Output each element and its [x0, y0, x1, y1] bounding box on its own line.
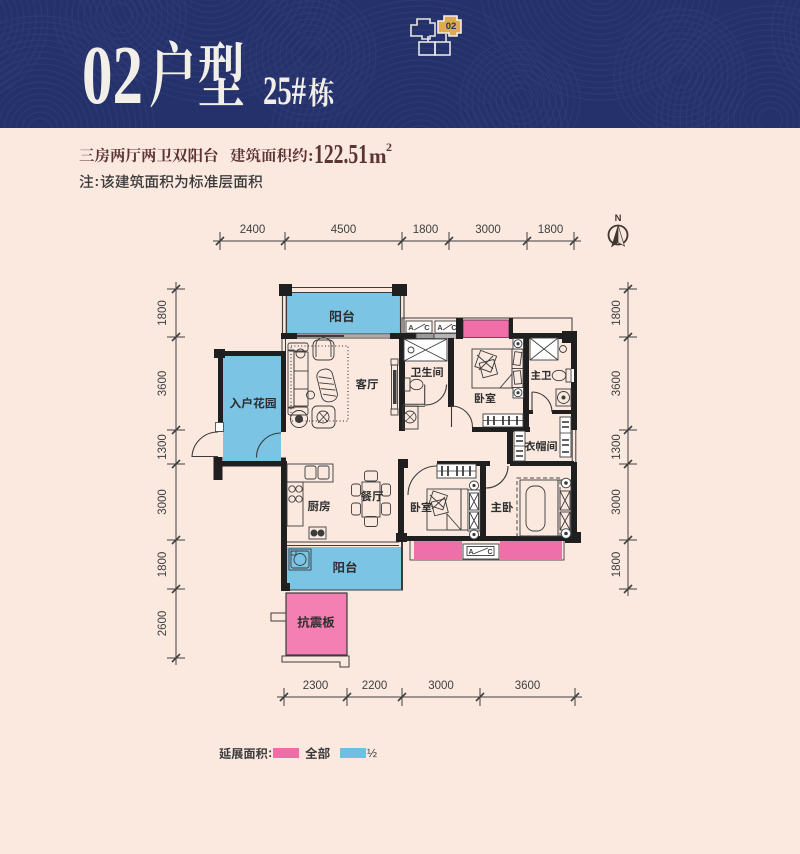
svg-text:C: C: [424, 323, 430, 332]
svg-text:1800: 1800: [413, 224, 439, 236]
svg-text:3000: 3000: [611, 489, 623, 515]
svg-text:2200: 2200: [362, 680, 388, 692]
svg-text:25#: 25#: [263, 68, 306, 113]
svg-text:02: 02: [446, 21, 457, 32]
svg-text:2300: 2300: [303, 680, 329, 692]
svg-text:1800: 1800: [611, 300, 623, 326]
svg-text:02: 02: [82, 29, 143, 122]
svg-text:2600: 2600: [157, 611, 169, 637]
svg-text::: :: [308, 146, 314, 165]
svg-text:3600: 3600: [515, 680, 541, 692]
svg-text:N: N: [615, 213, 622, 224]
svg-text:½: ½: [367, 746, 377, 760]
svg-text:2400: 2400: [240, 224, 266, 236]
svg-text::: :: [268, 745, 272, 760]
svg-text:122.51: 122.51: [314, 139, 368, 169]
svg-text:4500: 4500: [331, 224, 357, 236]
svg-text::: :: [95, 173, 100, 189]
svg-text:1800: 1800: [538, 224, 564, 236]
svg-text:3000: 3000: [475, 224, 501, 236]
svg-text:1800: 1800: [157, 552, 169, 578]
svg-text:3000: 3000: [428, 680, 454, 692]
svg-text:m: m: [369, 144, 387, 168]
svg-text:3000: 3000: [157, 489, 169, 515]
svg-text:A: A: [408, 323, 414, 332]
svg-text:2: 2: [386, 140, 392, 154]
svg-text:1800: 1800: [611, 552, 623, 578]
svg-text:1800: 1800: [157, 300, 169, 326]
svg-text:A: A: [437, 323, 443, 332]
svg-text:A: A: [468, 549, 473, 556]
svg-text:1300: 1300: [157, 434, 169, 460]
svg-text:3600: 3600: [157, 371, 169, 397]
svg-text:1300: 1300: [611, 434, 623, 460]
svg-text:3600: 3600: [611, 371, 623, 397]
svg-text:C: C: [487, 549, 492, 556]
